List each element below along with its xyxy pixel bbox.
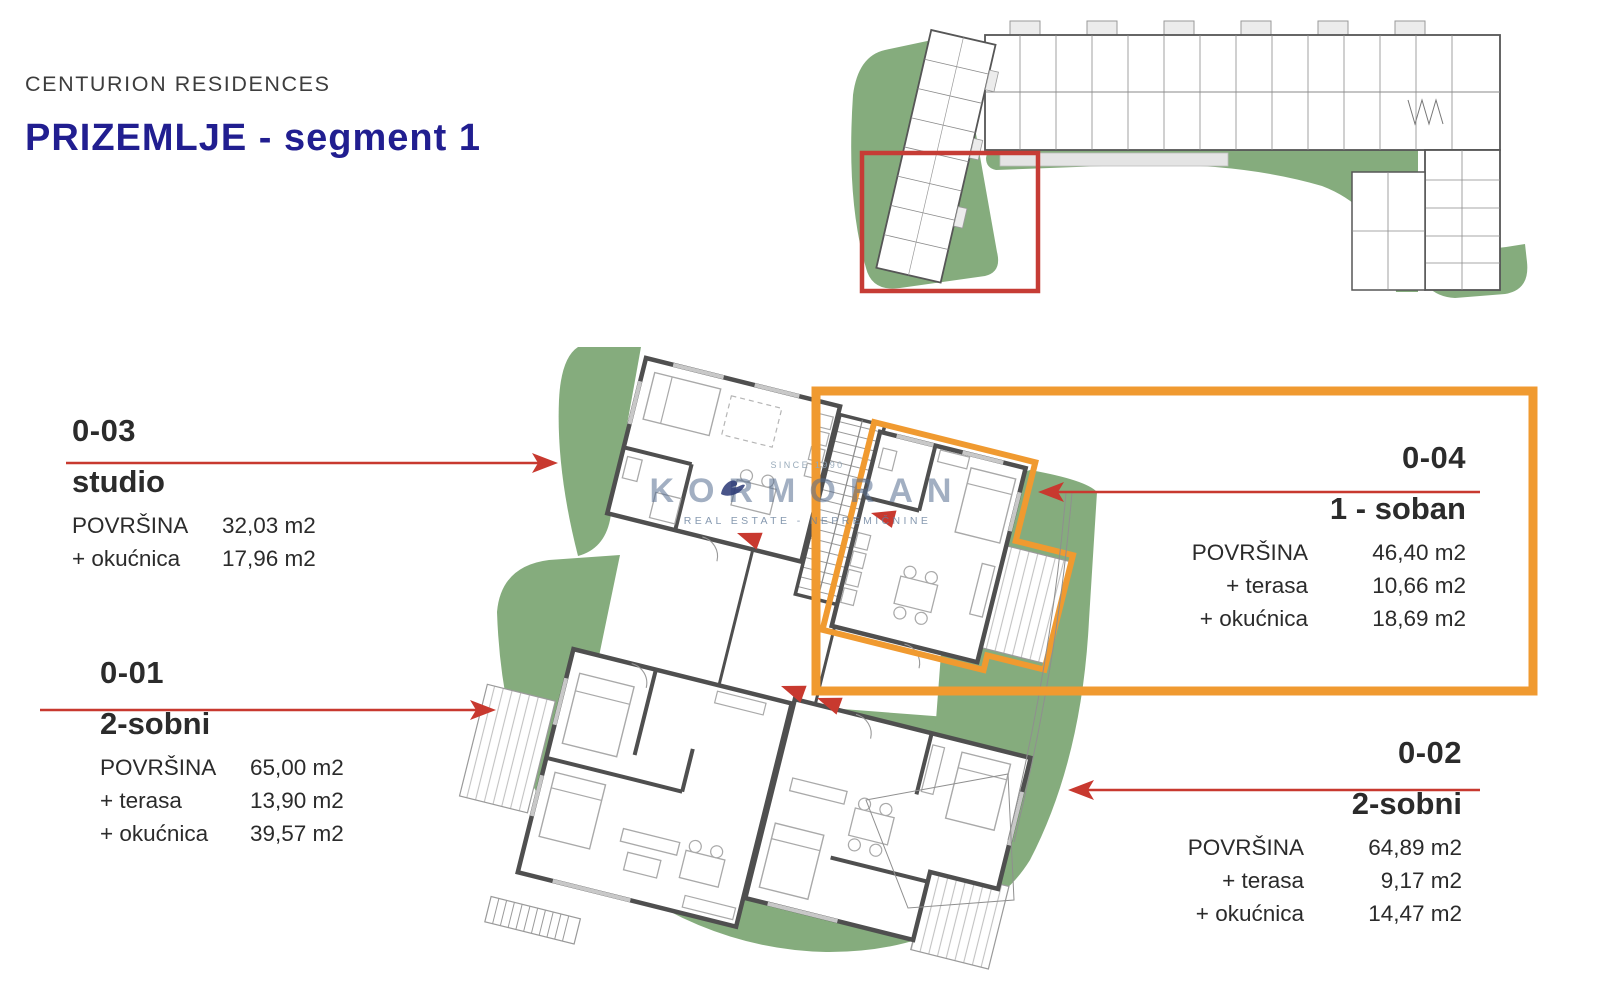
area-value: 9,17 m2 bbox=[1326, 864, 1462, 897]
unit-id-0-04: 0-04 bbox=[1066, 440, 1466, 476]
area-row: + okućnica 17,96 m2 bbox=[72, 542, 552, 575]
area-value: 10,66 m2 bbox=[1330, 569, 1466, 602]
area-label: + terasa bbox=[1222, 864, 1304, 897]
area-row: + terasa 13,90 m2 bbox=[100, 784, 580, 817]
unit-info-0-04: 0-04 1 - soban POVRŠINA 46,40 m2 + teras… bbox=[1066, 440, 1466, 635]
page-title: PRIZEMLJE - segment 1 bbox=[25, 117, 481, 160]
area-row: POVRŠINA 46,40 m2 bbox=[1066, 536, 1466, 569]
area-label: + okućnica bbox=[72, 542, 222, 575]
area-value: 14,47 m2 bbox=[1326, 897, 1462, 930]
project-name: CENTURION RESIDENCES bbox=[25, 72, 481, 97]
area-row: + terasa 10,66 m2 bbox=[1066, 569, 1466, 602]
area-label: + okućnica bbox=[100, 817, 250, 850]
area-value: 32,03 m2 bbox=[222, 509, 316, 542]
area-row: POVRŠINA 32,03 m2 bbox=[72, 509, 552, 542]
overview-top-bar bbox=[985, 21, 1500, 150]
area-value: 65,00 m2 bbox=[250, 751, 344, 784]
area-row: POVRŠINA 65,00 m2 bbox=[100, 751, 580, 784]
unit-0-03-plan bbox=[602, 358, 840, 581]
area-row: + okućnica 14,47 m2 bbox=[1062, 897, 1462, 930]
area-value: 17,96 m2 bbox=[222, 542, 316, 575]
unit-type-0-02: 2-sobni bbox=[1062, 786, 1462, 822]
unit-type-0-03: studio bbox=[72, 464, 552, 500]
floorplan-sheet: CENTURION RESIDENCES PRIZEMLJE - segment… bbox=[0, 0, 1600, 1000]
unit-info-0-03: 0-03 studio POVRŠINA 32,03 m2 + okućnica… bbox=[72, 413, 552, 575]
area-value: 13,90 m2 bbox=[250, 784, 344, 817]
area-value: 64,89 m2 bbox=[1326, 831, 1462, 864]
area-label: POVRŠINA bbox=[72, 509, 222, 542]
unit-info-0-02: 0-02 2-sobni POVRŠINA 64,89 m2 + terasa … bbox=[1062, 735, 1462, 930]
unit-type-0-04: 1 - soban bbox=[1066, 491, 1466, 527]
unit-type-0-01: 2-sobni bbox=[100, 706, 580, 742]
area-row: POVRŠINA 64,89 m2 bbox=[1062, 831, 1462, 864]
area-label: + terasa bbox=[100, 784, 250, 817]
unit-id-0-02: 0-02 bbox=[1062, 735, 1462, 771]
area-value: 18,69 m2 bbox=[1330, 602, 1466, 635]
area-label: POVRŠINA bbox=[1192, 536, 1308, 569]
header: CENTURION RESIDENCES PRIZEMLJE - segment… bbox=[25, 72, 481, 160]
area-label: + terasa bbox=[1226, 569, 1308, 602]
area-row: + terasa 9,17 m2 bbox=[1062, 864, 1462, 897]
area-label: + okućnica bbox=[1200, 602, 1308, 635]
area-label: + okućnica bbox=[1196, 897, 1304, 930]
area-row: + okućnica 39,57 m2 bbox=[100, 817, 580, 850]
area-label: POVRŠINA bbox=[100, 751, 250, 784]
area-row: + okućnica 18,69 m2 bbox=[1066, 602, 1466, 635]
area-value: 46,40 m2 bbox=[1330, 536, 1466, 569]
exterior-stairs bbox=[485, 897, 581, 944]
unit-id-0-01: 0-01 bbox=[100, 655, 580, 691]
unit-id-0-03: 0-03 bbox=[72, 413, 552, 449]
unit-info-0-01: 0-01 2-sobni POVRŠINA 65,00 m2 + terasa … bbox=[100, 655, 580, 850]
area-value: 39,57 m2 bbox=[250, 817, 344, 850]
overview-plan bbox=[851, 21, 1527, 298]
area-label: POVRŠINA bbox=[1188, 831, 1304, 864]
